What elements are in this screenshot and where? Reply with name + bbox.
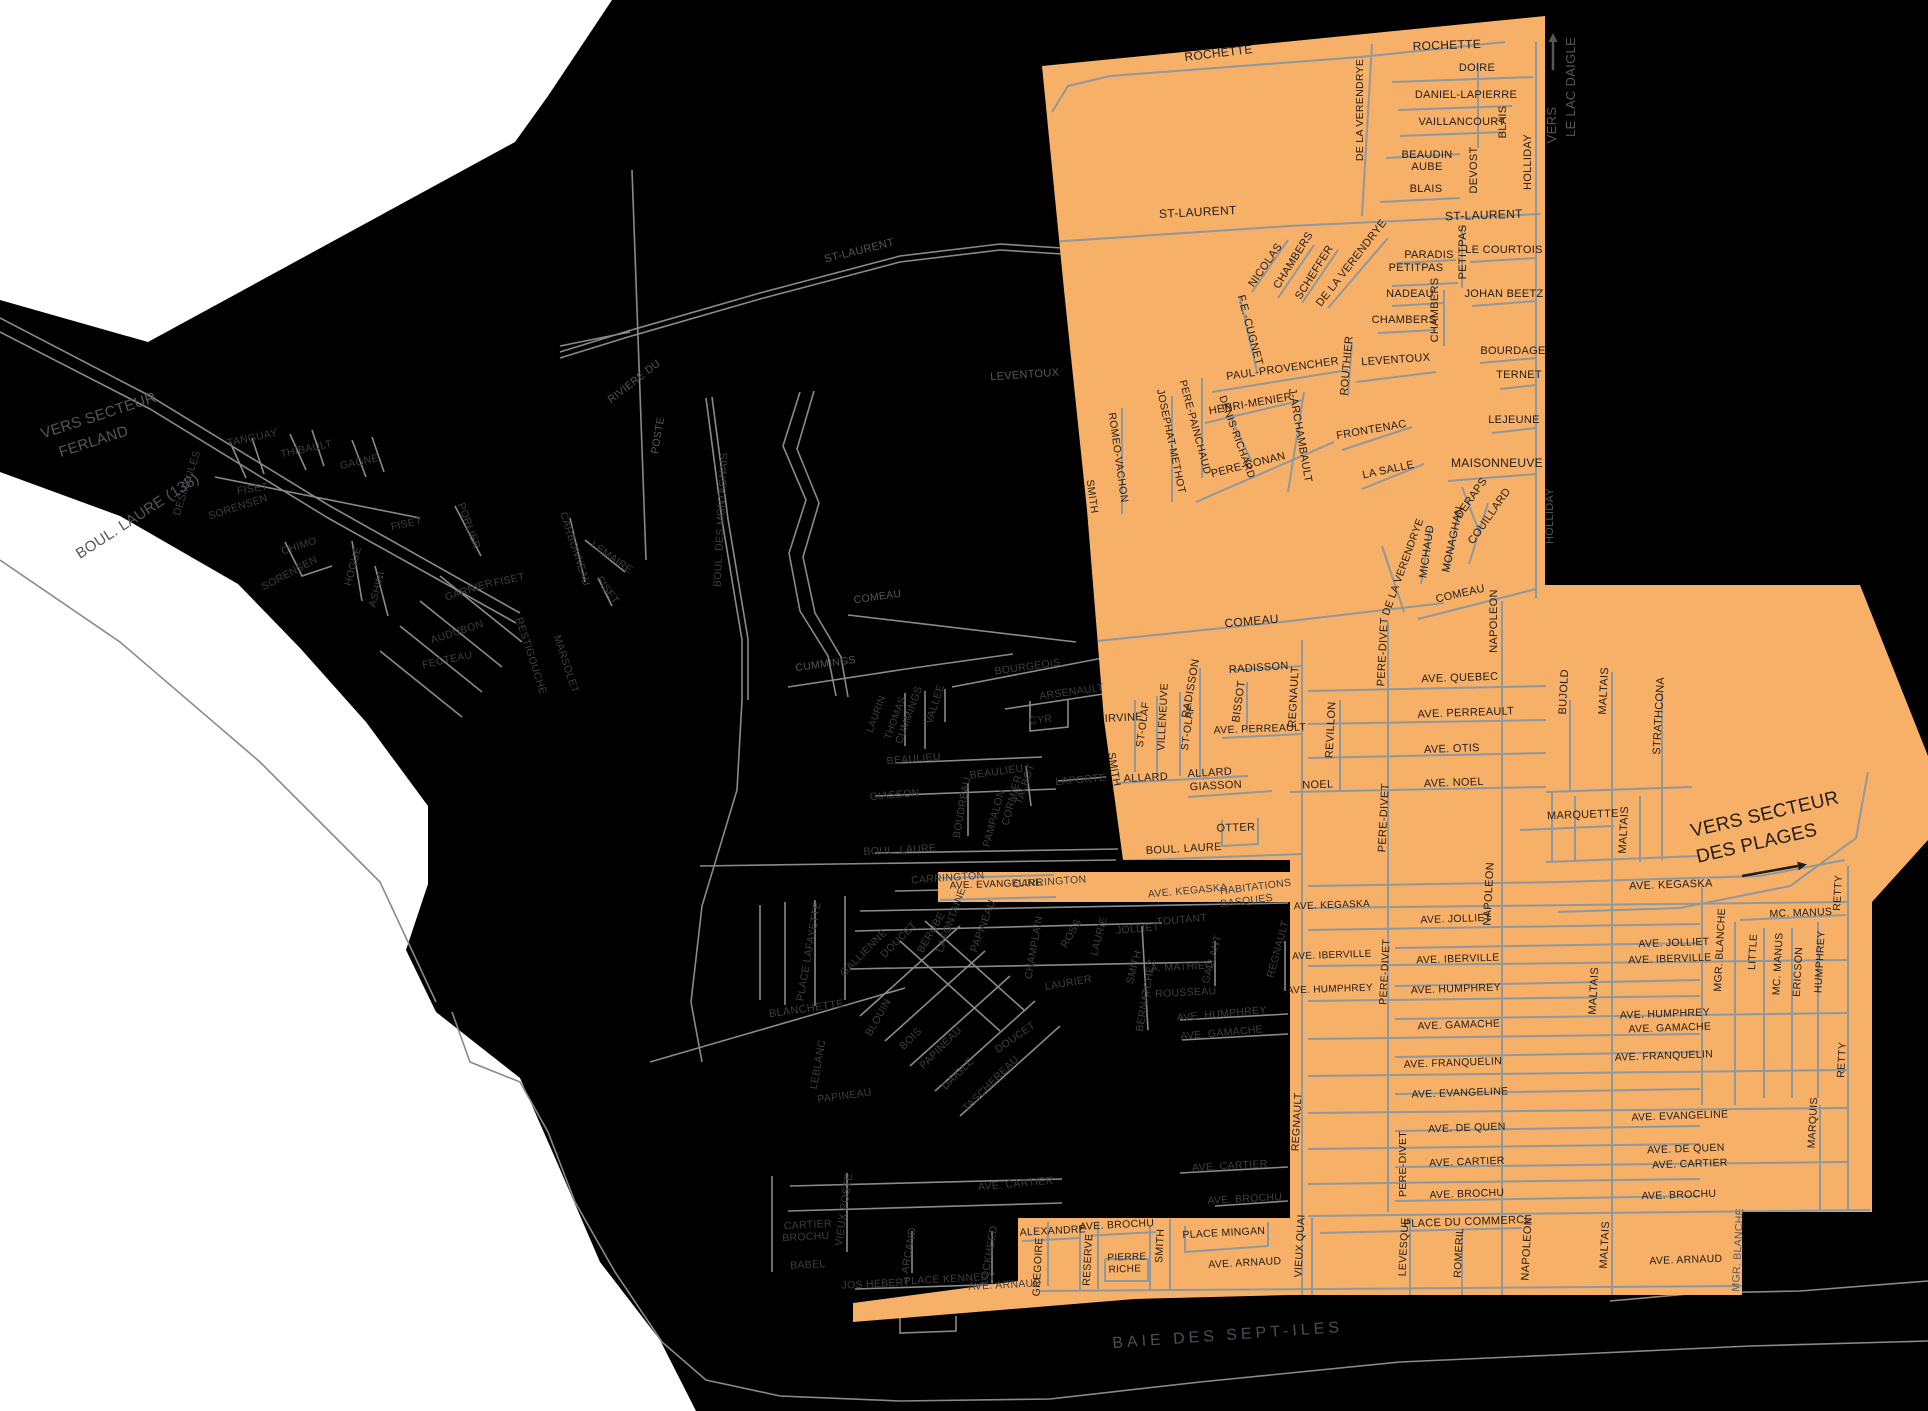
street-label: CHAMBERS	[1429, 278, 1441, 343]
street-label: LE COURTOIS	[1465, 244, 1542, 256]
street-label: ROCHETTE	[1412, 37, 1481, 53]
street-label: SMITH	[1153, 1228, 1167, 1263]
street-label: TERNET	[1496, 369, 1542, 381]
street-label: LE LAC DAIGLE	[1563, 37, 1578, 137]
street-label: BEAUDIN	[1402, 149, 1453, 161]
street-label: AUBE	[1411, 161, 1442, 173]
street-label: MARQUETTE	[1547, 808, 1619, 822]
street-label: PARADIS	[1404, 249, 1454, 261]
street-label: OTTER	[1216, 821, 1255, 834]
street-label: CYR	[1029, 713, 1053, 727]
street-label: MALTAIS	[1597, 667, 1611, 715]
map-canvas: ROCHETTEROCHETTEDOIREDANIEL-LAPIERREVAIL…	[0, 0, 1928, 1411]
street-label: BLAIS	[1410, 183, 1443, 195]
street-label: ALLARD	[1123, 771, 1168, 785]
street-label: RICHE	[1108, 1263, 1141, 1275]
street-label: VERS	[1544, 107, 1559, 144]
street-label: LITTLE	[1746, 933, 1760, 970]
street-label: PERE-DIVET	[1397, 1131, 1409, 1197]
street-label: AVE. ARNAUD	[1649, 1253, 1723, 1268]
street-label: MALTAIS	[1598, 1221, 1612, 1269]
street-label: BUJOLD	[1557, 669, 1571, 715]
street-label: BABEL	[790, 1258, 826, 1272]
street-label: ST-LAURENT	[1445, 207, 1523, 224]
street-label: NAPOLEON	[1488, 589, 1500, 653]
street-label: RETTY	[1831, 875, 1845, 912]
street-label: MALTAIS	[1587, 967, 1601, 1015]
street-label: AVE. OTIS	[1424, 742, 1480, 756]
street-label: AVE. NOEL	[1424, 776, 1484, 790]
street-label: MC. MANUS	[1769, 906, 1832, 920]
street-label: MALTAIS	[1617, 806, 1631, 854]
street-label: BROCHU	[782, 1230, 830, 1244]
street-label: NOEL	[1302, 778, 1334, 791]
street-label: NADEAU	[1386, 288, 1434, 300]
city-map: ROCHETTEROCHETTEDOIREDANIEL-LAPIERREVAIL…	[0, 0, 1928, 1411]
street-label: DOIRE	[1459, 62, 1495, 74]
street-label: AVE. JOLLIET	[1638, 936, 1710, 950]
street-label: BLAIS	[1497, 106, 1509, 139]
street-label: MAISONNEUVE	[1451, 456, 1543, 470]
street-label: HOLLIDAY	[1544, 488, 1556, 544]
street-label: PETITPAS	[1389, 262, 1444, 274]
street-label: HOLLIDAY	[1522, 134, 1534, 190]
street-label: ALLARD	[1187, 766, 1232, 780]
street-label: DEVOST	[1468, 146, 1480, 193]
street-label: VAILLANCOURT	[1419, 116, 1506, 128]
street-label: PIERRE	[1107, 1251, 1146, 1263]
street-label: BOURDAGE	[1480, 345, 1545, 357]
street-label: LEJEUNE	[1488, 414, 1540, 426]
street-label: RETTY	[1835, 1042, 1849, 1079]
street-label: DE LA VERENDRYE	[1354, 59, 1366, 161]
street-label: CHAMBERS	[1372, 314, 1437, 326]
street-label: JOHAN BEETZ	[1464, 288, 1543, 300]
street-label: DANIEL-LAPIERRE	[1415, 89, 1517, 101]
